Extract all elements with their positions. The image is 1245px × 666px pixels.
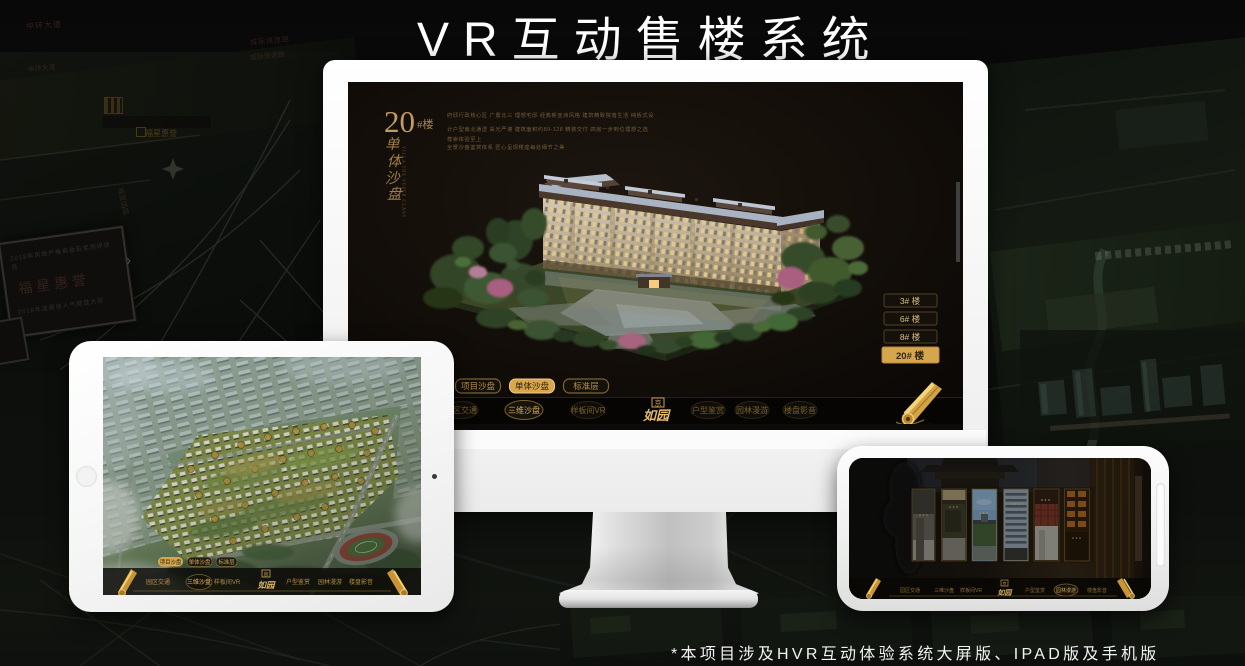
svg-text:VILLA THE SUPER CLASS: VILLA THE SUPER CLASS [402, 146, 407, 218]
svg-text:京: 京 [1002, 580, 1006, 587]
svg-text:单体沙盘: 单体沙盘 [189, 558, 211, 566]
svg-text:城际快速路: 城际快速路 [249, 49, 285, 62]
svg-text:计户型南北通透 采光严谨 建筑面积约89-128 精装交付: 计户型南北通透 采光严谨 建筑面积约89-128 精装交付 四房一步到位理想之选 [447, 125, 648, 133]
svg-text:项目沙盘: 项目沙盘 [461, 381, 496, 391]
svg-text:沙: 沙 [385, 170, 401, 187]
svg-text:楼盘影音: 楼盘影音 [1087, 587, 1107, 594]
svg-text:京: 京 [263, 571, 268, 578]
svg-text:园林漫游: 园林漫游 [318, 578, 342, 586]
svg-text:单体沙盘: 单体沙盘 [515, 381, 550, 391]
svg-text:20: 20 [384, 104, 415, 139]
svg-text:如园: 如园 [257, 580, 276, 590]
svg-text:园林漫游: 园林漫游 [1056, 587, 1076, 594]
svg-text:样板间VR: 样板间VR [960, 587, 982, 594]
svg-text:楼盘影音: 楼盘影音 [784, 405, 816, 415]
svg-text:样板间VR: 样板间VR [570, 405, 605, 415]
svg-text:如园: 如园 [643, 408, 671, 423]
svg-text:8# 楼: 8# 楼 [900, 332, 921, 342]
svg-text:标准层: 标准层 [218, 558, 235, 566]
svg-text:三维沙盘: 三维沙盘 [187, 578, 211, 586]
svg-text:园区交通: 园区交通 [146, 578, 170, 586]
svg-text:全景沙盘鉴赏体系 匠心呈现楼座每处细节之美: 全景沙盘鉴赏体系 匠心呈现楼座每处细节之美 [447, 143, 565, 151]
svg-text:标准层: 标准层 [573, 381, 599, 391]
svg-text:楼盘影音: 楼盘影音 [349, 578, 373, 586]
svg-text:京: 京 [655, 399, 662, 408]
svg-text:园林漫游: 园林漫游 [736, 405, 768, 415]
svg-text:尊崇体验至上: 尊崇体验至上 [447, 135, 482, 143]
svg-text:样板间VR: 样板间VR [214, 578, 241, 586]
svg-text:20# 楼: 20# 楼 [896, 350, 924, 362]
svg-text:三维沙盘: 三维沙盘 [934, 587, 954, 594]
svg-text:中环大道: 中环大道 [27, 62, 56, 74]
svg-text:#楼: #楼 [417, 117, 434, 131]
svg-text:6# 楼: 6# 楼 [900, 314, 921, 324]
svg-text:3# 楼: 3# 楼 [900, 296, 921, 306]
svg-text:户型鉴赏: 户型鉴赏 [1025, 587, 1045, 594]
svg-text:户型鉴赏: 户型鉴赏 [692, 405, 724, 415]
svg-text:福星国路: 福星国路 [116, 187, 131, 216]
svg-text:户型鉴赏: 户型鉴赏 [286, 578, 310, 586]
svg-text:园区交通: 园区交通 [900, 587, 920, 594]
svg-text:府邸行政核心区 广置北三 理想宅邸 经典新亚洲风格 建筑精致: 府邸行政核心区 广置北三 理想宅邸 经典新亚洲风格 建筑精致院落生活 纯板式设 [447, 111, 654, 119]
svg-text:单: 单 [385, 136, 400, 153]
svg-text:三维沙盘: 三维沙盘 [508, 405, 540, 415]
svg-text:项目沙盘: 项目沙盘 [160, 558, 182, 566]
